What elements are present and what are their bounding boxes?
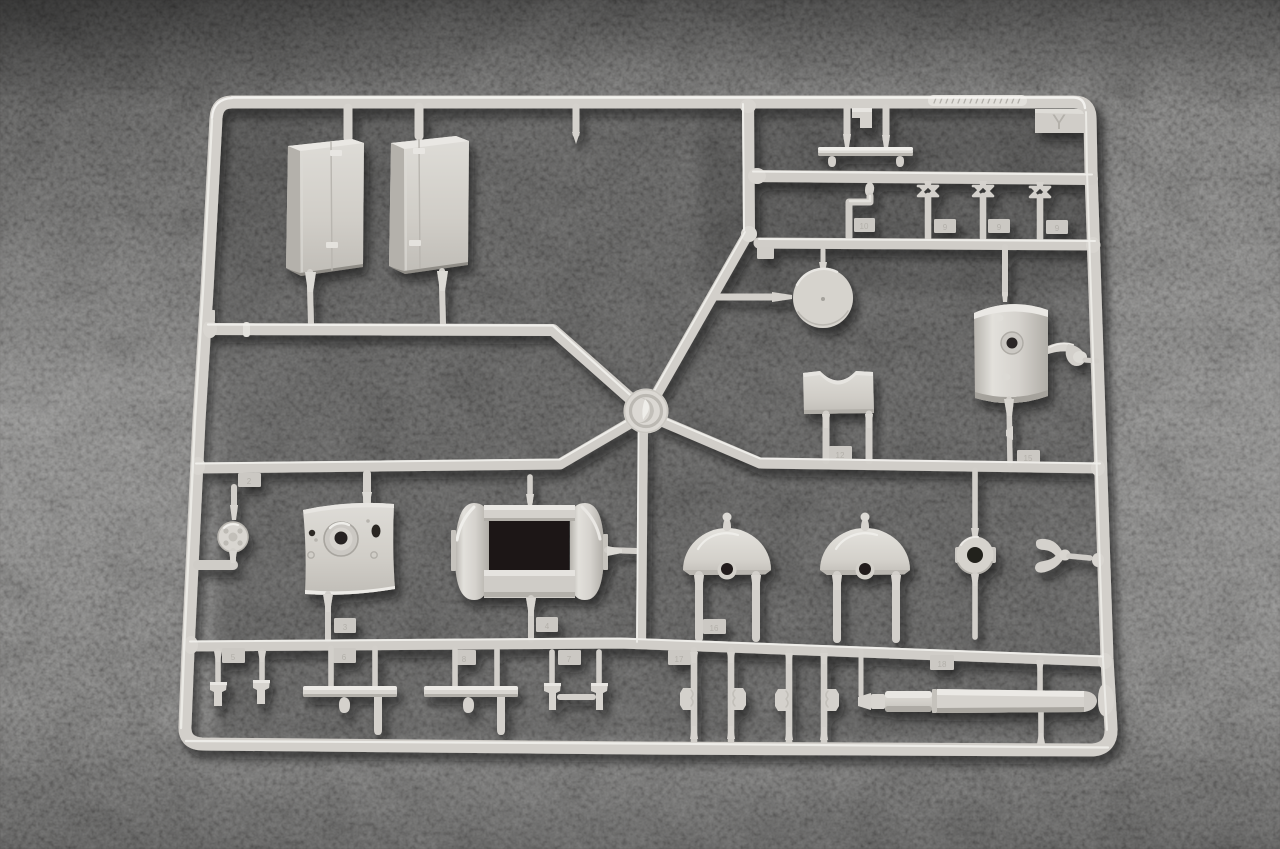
svg-text:7: 7: [567, 655, 572, 664]
svg-text:8: 8: [462, 655, 467, 664]
svg-text:16: 16: [710, 624, 719, 633]
svg-text:9: 9: [1055, 224, 1060, 233]
svg-text:4: 4: [545, 622, 550, 631]
svg-text:9: 9: [943, 223, 948, 232]
svg-text:9: 9: [997, 223, 1002, 232]
svg-text:Y: Y: [1052, 111, 1066, 134]
svg-text:5: 5: [231, 653, 236, 662]
svg-text:2: 2: [247, 477, 252, 486]
svg-text:17: 17: [675, 655, 684, 664]
svg-text:3: 3: [343, 623, 348, 632]
svg-text:6: 6: [342, 653, 347, 662]
svg-text:10: 10: [860, 222, 869, 231]
svg-text:18: 18: [938, 660, 947, 669]
